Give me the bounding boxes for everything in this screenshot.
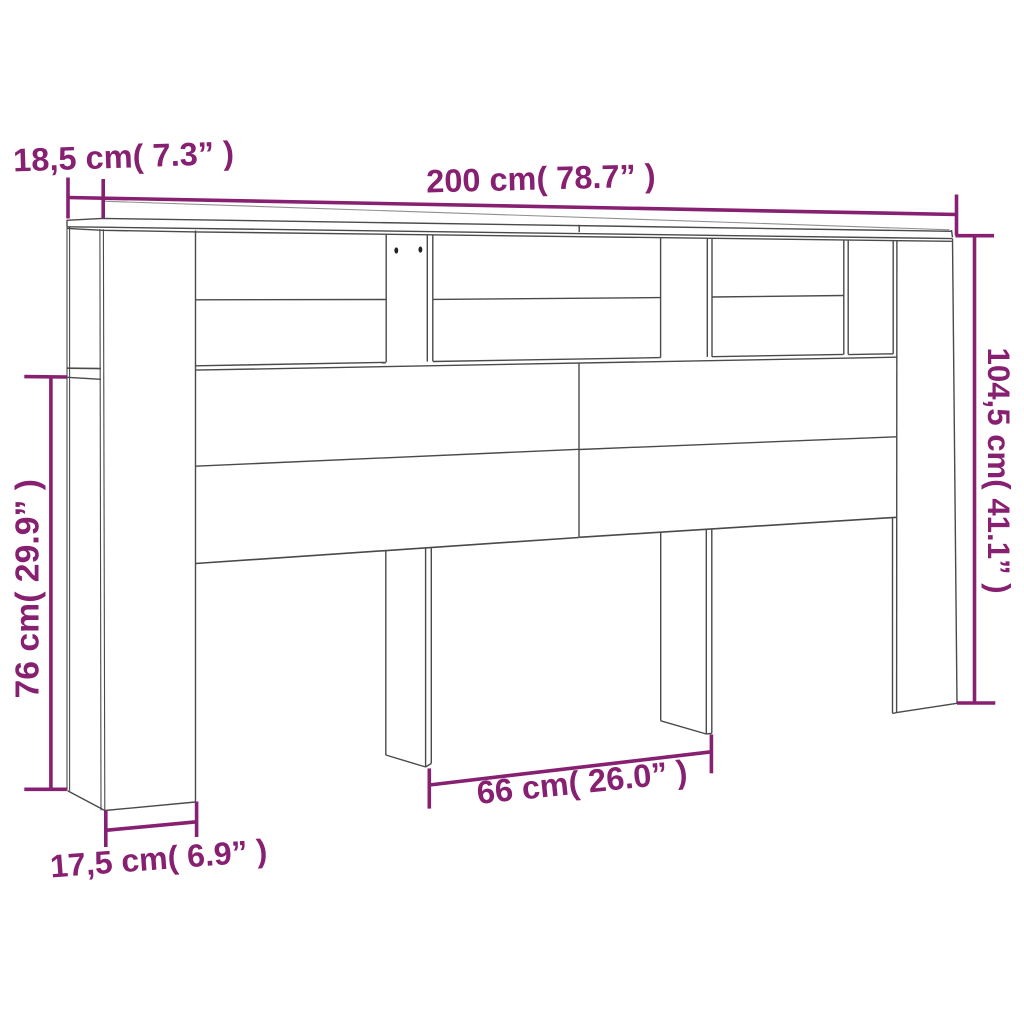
svg-text:17,5 cm( 6.9” ): 17,5 cm( 6.9” ) [49, 832, 269, 884]
svg-text:18,5 cm( 7.3” ): 18,5 cm( 7.3” ) [12, 134, 234, 179]
svg-text:200 cm( 78.7” ): 200 cm( 78.7” ) [426, 158, 656, 200]
svg-text:104,5 cm( 41.1” ): 104,5 cm( 41.1” ) [981, 348, 1016, 594]
svg-text:66 cm( 26.0” ): 66 cm( 26.0” ) [475, 753, 689, 811]
svg-text:76 cm( 29.9” ): 76 cm( 29.9” ) [9, 479, 47, 699]
